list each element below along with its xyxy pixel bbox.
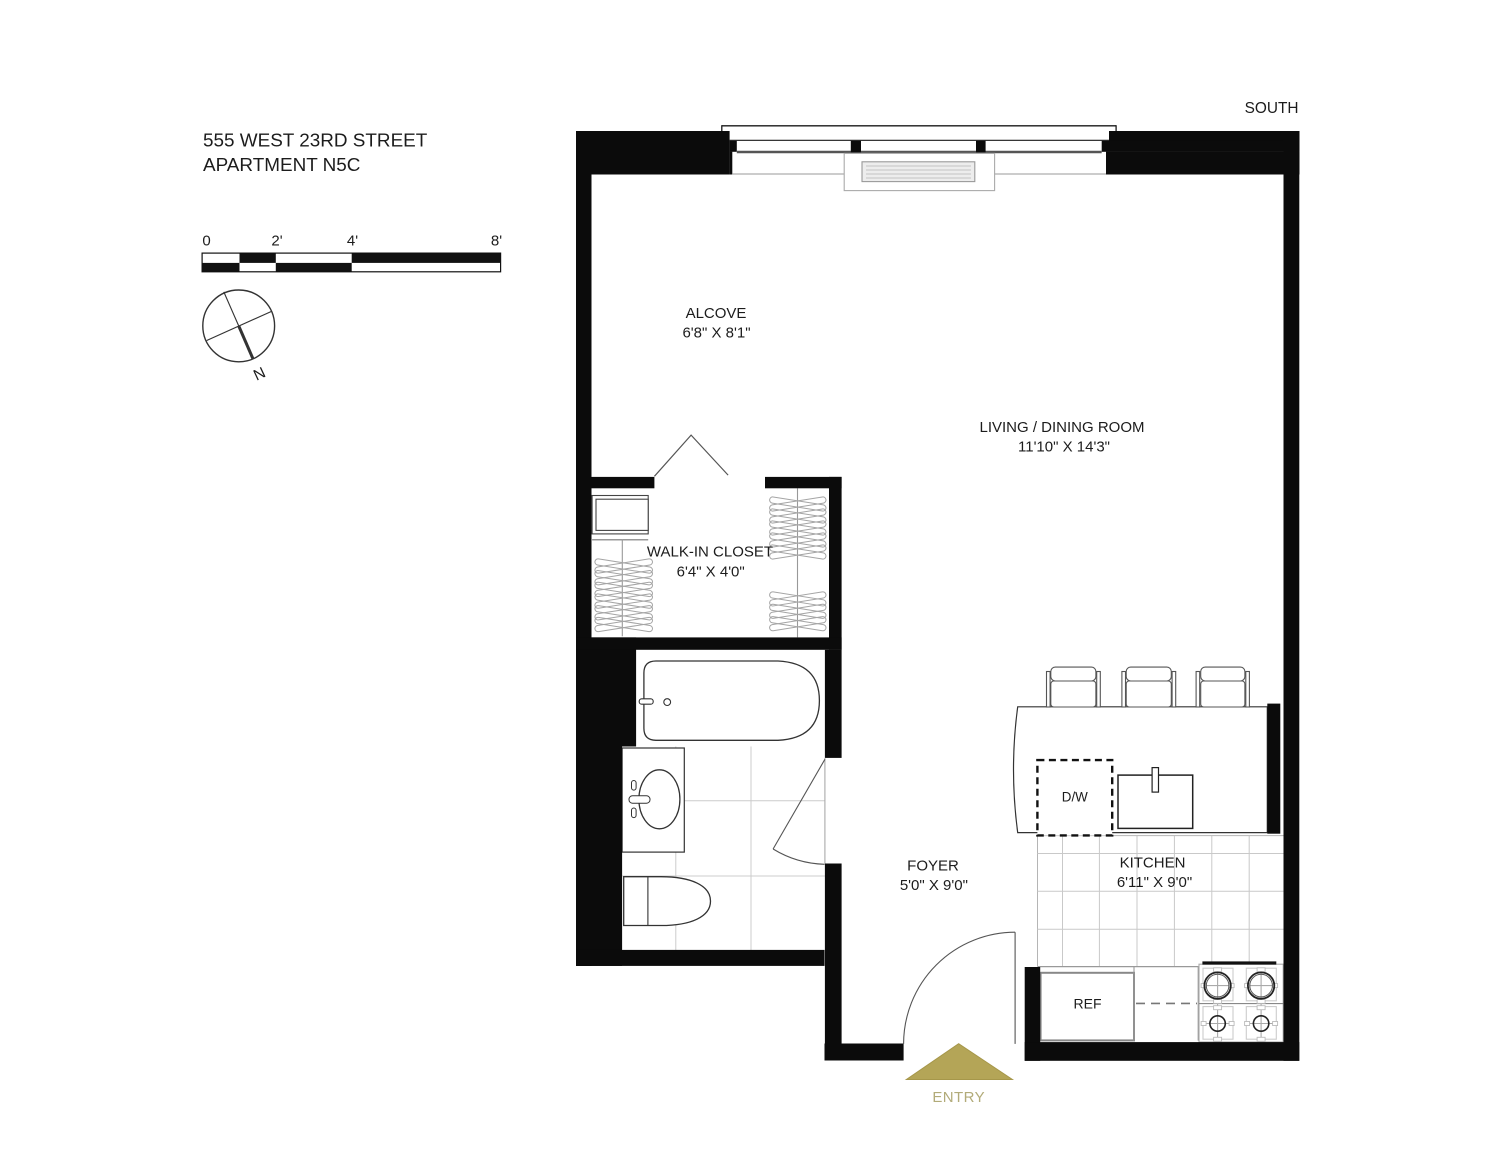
svg-text:4': 4' [347, 232, 358, 249]
svg-text:6'4" X 4'0": 6'4" X 4'0" [677, 563, 745, 580]
svg-text:ENTRY: ENTRY [932, 1089, 985, 1106]
svg-text:D/W: D/W [1062, 790, 1088, 805]
svg-text:ALCOVE: ALCOVE [686, 305, 747, 322]
svg-text:6'8" X 8'1": 6'8" X 8'1" [682, 324, 750, 341]
svg-text:555 WEST 23RD STREET: 555 WEST 23RD STREET [203, 131, 428, 152]
svg-text:6'11" X 9'0": 6'11" X 9'0" [1117, 874, 1192, 891]
svg-text:0: 0 [202, 232, 210, 249]
svg-text:2': 2' [271, 232, 282, 249]
svg-text:11'10" X 14'3": 11'10" X 14'3" [1018, 439, 1110, 456]
svg-text:N: N [251, 364, 268, 384]
svg-text:SOUTH: SOUTH [1245, 100, 1299, 117]
svg-text:KITCHEN: KITCHEN [1120, 854, 1186, 871]
svg-text:FOYER: FOYER [907, 857, 959, 874]
svg-text:APARTMENT N5C: APARTMENT N5C [203, 155, 360, 176]
svg-text:5'0" X 9'0": 5'0" X 9'0" [900, 877, 968, 894]
svg-text:8': 8' [491, 232, 502, 249]
svg-text:LIVING / DINING ROOM: LIVING / DINING ROOM [979, 419, 1144, 436]
svg-text:REF: REF [1074, 996, 1102, 1012]
svg-text:WALK-IN CLOSET: WALK-IN CLOSET [647, 544, 773, 561]
